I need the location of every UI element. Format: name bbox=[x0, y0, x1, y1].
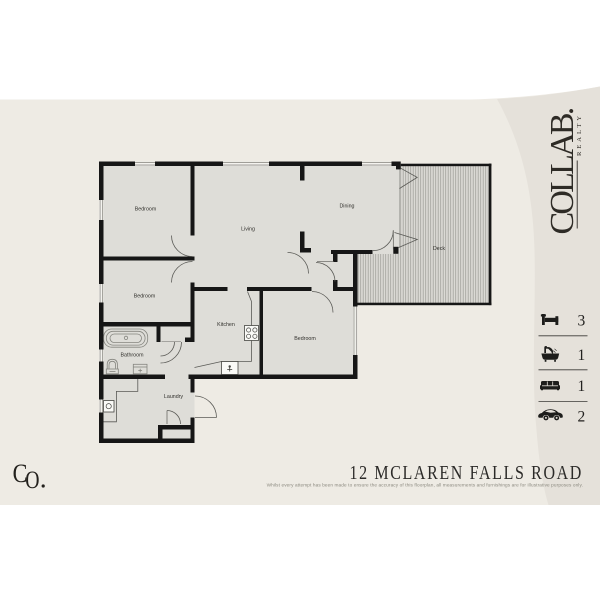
svg-text:1: 1 bbox=[578, 378, 586, 395]
svg-text:1: 1 bbox=[578, 347, 586, 364]
svg-text:Dining: Dining bbox=[339, 203, 354, 209]
svg-text:Laundry: Laundry bbox=[164, 394, 183, 400]
svg-text:Living: Living bbox=[241, 227, 255, 233]
svg-text:Kitchen: Kitchen bbox=[217, 322, 235, 328]
svg-text:Deck: Deck bbox=[433, 246, 445, 252]
svg-text:Bathroom: Bathroom bbox=[121, 353, 145, 359]
svg-text:Whilst every attempt has been: Whilst every attempt has been made to en… bbox=[267, 483, 583, 488]
svg-text:REALTY: REALTY bbox=[576, 113, 583, 156]
svg-text:12 MCLAREN FALLS ROAD: 12 MCLAREN FALLS ROAD bbox=[349, 461, 583, 483]
svg-text:Bedroom: Bedroom bbox=[134, 293, 156, 299]
svg-text:3: 3 bbox=[578, 312, 586, 329]
svg-text:2: 2 bbox=[578, 408, 586, 425]
svg-text:O: O bbox=[25, 466, 39, 494]
svg-text:Bedroom: Bedroom bbox=[135, 207, 157, 213]
svg-text:Bedroom: Bedroom bbox=[294, 336, 316, 342]
